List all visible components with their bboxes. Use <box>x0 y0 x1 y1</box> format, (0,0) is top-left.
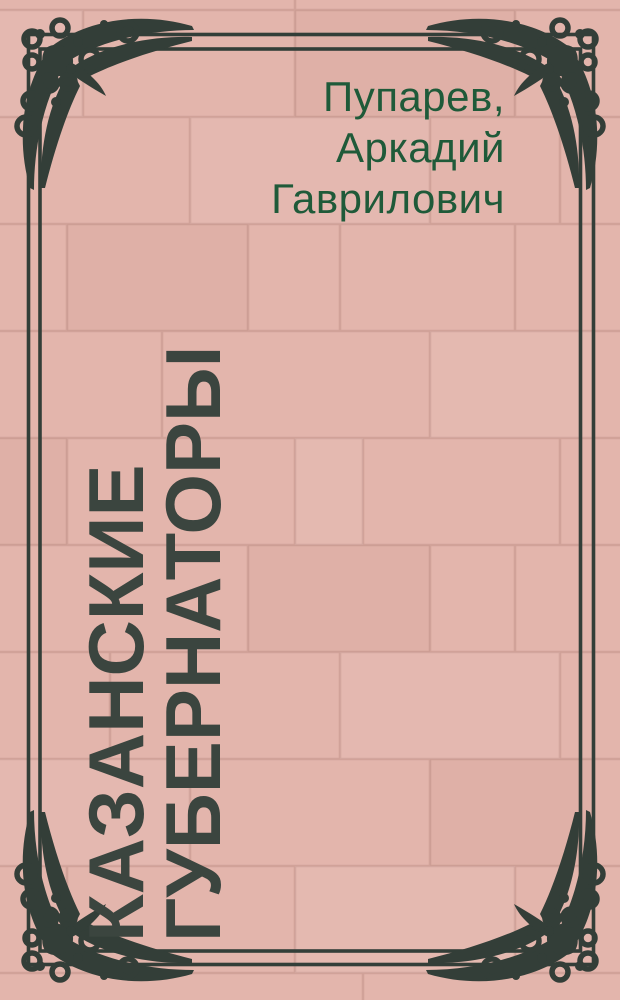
author-name: Пупарев, Аркадий Гаврилович <box>271 71 505 224</box>
book-cover: Пупарев, Аркадий Гаврилович КАЗАНСКИЕ ГУ… <box>0 0 620 1000</box>
author-line-2: Аркадий <box>271 122 505 173</box>
book-title: КАЗАНСКИЕ ГУБЕРНАТОРЫ <box>78 287 248 942</box>
author-line-1: Пупарев, <box>271 71 505 122</box>
title-line-2: ГУБЕРНАТОРЫ <box>155 287 232 942</box>
title-line-1: КАЗАНСКИЕ <box>78 287 155 942</box>
author-line-3: Гаврилович <box>271 173 505 224</box>
